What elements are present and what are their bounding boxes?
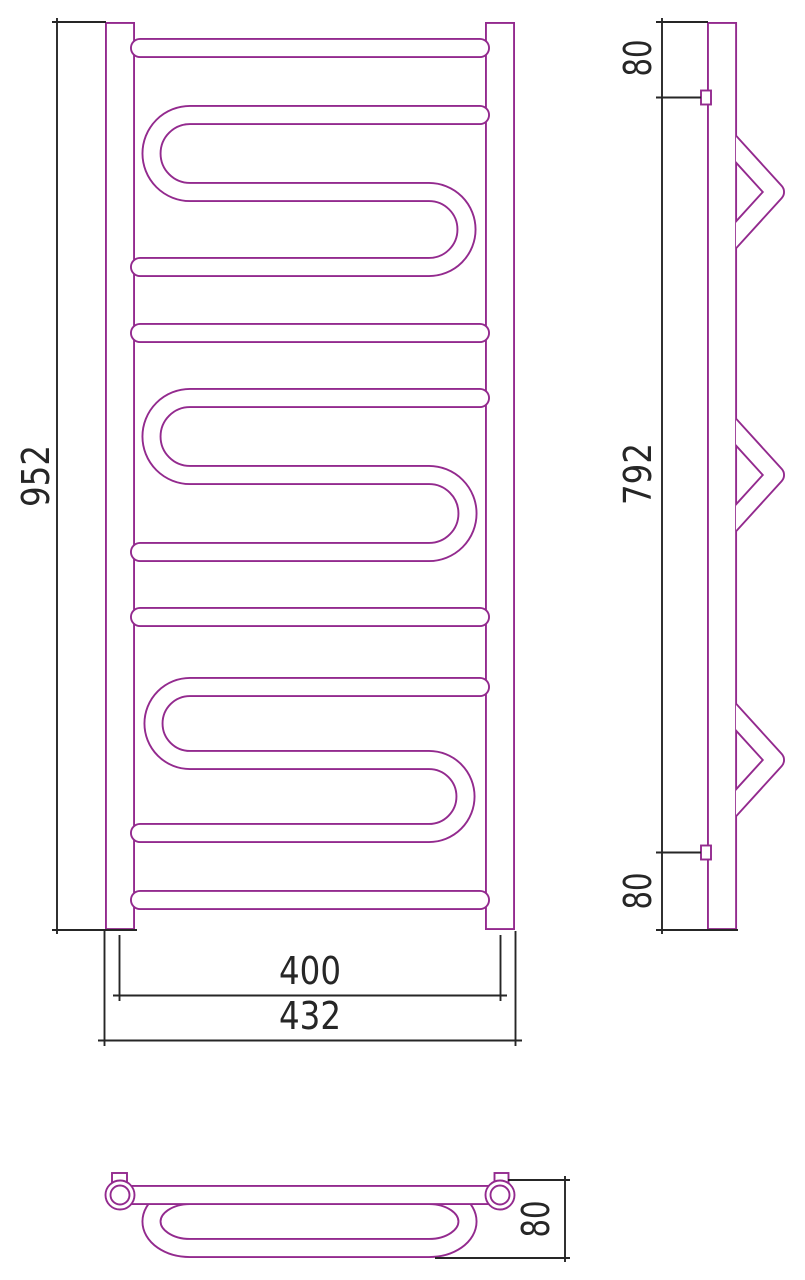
side-view: 80 792 80 [616, 18, 775, 934]
dimension-label-centers: 400 [279, 949, 341, 993]
tube-end-left-inner [111, 1186, 130, 1205]
dimension-label-overall: 432 [279, 994, 341, 1038]
side-vertical-tube [708, 23, 736, 929]
vertical-tube-left [106, 23, 134, 929]
wall-bracket-top [701, 91, 711, 105]
wall-bracket-bottom [701, 846, 711, 860]
technical-drawing: 952 400 432 [0, 0, 805, 1280]
serpentine-coil-1 [140, 115, 480, 267]
tube-inner [140, 398, 480, 552]
dimension-label-bottom-offset: 80 [616, 873, 660, 910]
drawing-sheet: 952 400 432 [0, 0, 805, 1280]
serpentine-coil-2 [140, 398, 480, 552]
bottom-view: 80 [106, 1173, 571, 1262]
dimension-label-top-offset: 80 [616, 40, 660, 77]
side-tubes [701, 23, 775, 929]
tube-end-right-inner [491, 1186, 510, 1205]
dimension-label-depth: 80 [514, 1201, 558, 1238]
dimension-label-bracket-distance: 792 [616, 443, 660, 505]
bottom-tubes [106, 1173, 515, 1248]
front-tubes [106, 23, 514, 929]
serpentine-coil-3 [140, 687, 480, 833]
vertical-tube-right [486, 23, 514, 929]
dimension-label-height: 952 [14, 445, 58, 507]
tube-inner [140, 115, 480, 267]
front-view: 952 400 432 [14, 18, 522, 1046]
tube-inner [140, 687, 480, 833]
